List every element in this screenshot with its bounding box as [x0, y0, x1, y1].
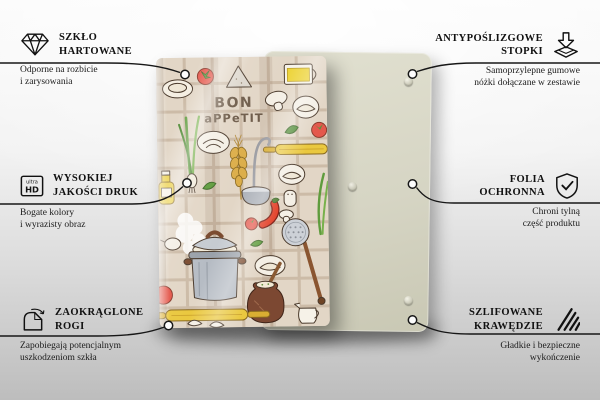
tomato: [312, 122, 327, 137]
feature-description: Samoprzylepne gumowe nóżki dołączane w z…: [400, 66, 580, 89]
feature-description: Chroni tylną część produktu: [400, 207, 580, 230]
feature-description: Odporne na rozbicie i zarysowania: [20, 65, 180, 88]
feature-anti-slip-feet: ANTYPOŚLIZGOWE STOPKI Samoprzylepne gumo…: [400, 31, 580, 89]
feature-tempered-glass: SZKŁO HARTOWANE Odporne na rozbicie i za…: [20, 31, 180, 88]
adhesive-feet-icon: [552, 31, 580, 59]
feature-title: ANTYPOŚLIZGOWE STOPKI: [435, 32, 543, 59]
svg-text:aPPeTIT: aPPeTIT: [204, 111, 264, 126]
tomato: [197, 68, 213, 84]
feature-title: WYSOKIEJ JAKOŚCI DRUK: [53, 172, 138, 199]
product-infographic: BON aPPeTIT: [0, 0, 600, 400]
shield-check-icon: [554, 172, 580, 200]
feature-title: SZKŁO HARTOWANE: [59, 31, 132, 58]
tomato: [245, 218, 257, 230]
feature-title: FOLIA OCHRONNA: [479, 173, 545, 200]
rubber-foot: [348, 182, 357, 191]
feature-rounded-corners: ZAOKRĄGLONE ROGI Zapobiegają potencjalny…: [20, 306, 180, 364]
rubber-foot: [404, 296, 413, 305]
rounded-corner-icon: [20, 307, 46, 332]
feature-description: Zapobiegają potencjalnym uszkodzeniom sz…: [20, 341, 180, 364]
svg-text:BON: BON: [214, 95, 253, 112]
feature-title: SZLIFOWANE KRAWĘDZIE: [469, 306, 543, 333]
svg-text:HD: HD: [25, 184, 39, 194]
feature-polished-edges: SZLIFOWANE KRAWĘDZIE Gładkie i bezpieczn…: [400, 306, 580, 364]
pierogi-plate: [293, 96, 319, 118]
dumpling-plate: [279, 164, 305, 184]
kitchen-pattern-illustration: BON aPPeTIT: [156, 56, 330, 328]
feature-protective-film: FOLIA OCHRONNA Chroni tylną część produk…: [400, 172, 580, 230]
feature-description: Bogate kolory i wyrazisty obraz: [20, 208, 180, 231]
feature-print-quality: ultra HD WYSOKIEJ JAKOŚCI DRUK Bogate ko…: [20, 172, 180, 231]
salt-shaker: [284, 190, 296, 206]
ultra-hd-icon: ultra HD: [20, 174, 44, 198]
tomato: [156, 286, 172, 304]
feature-description: Gładkie i bezpieczne wykończenie: [400, 341, 580, 364]
board-front-panel: BON aPPeTIT: [156, 56, 330, 328]
diamond-icon: [20, 32, 50, 57]
polished-edges-icon: [552, 307, 580, 332]
measuring-cup: [284, 64, 316, 84]
dumpling-bowl: [197, 131, 229, 153]
feature-title: ZAOKRĄGLONE ROGI: [55, 306, 143, 333]
